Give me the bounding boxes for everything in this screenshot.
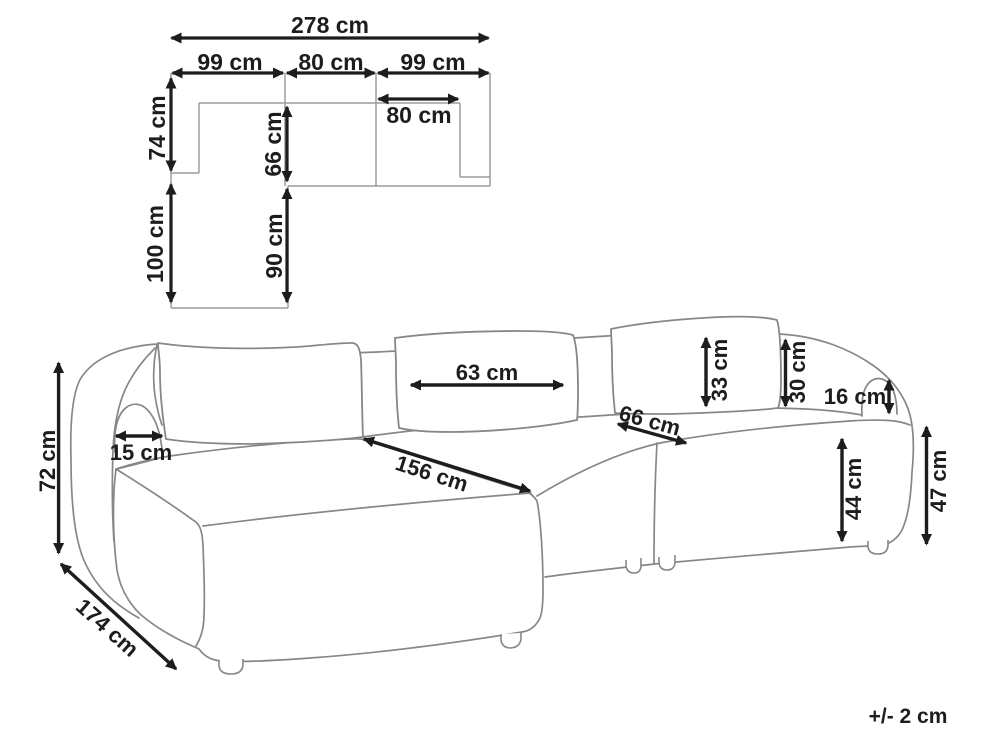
svg-text:47 cm: 47 cm xyxy=(926,450,951,512)
svg-text:72 cm: 72 cm xyxy=(35,430,60,492)
svg-text:278 cm: 278 cm xyxy=(291,12,369,38)
svg-text:63 cm: 63 cm xyxy=(456,360,518,385)
svg-text:99 cm: 99 cm xyxy=(400,49,465,75)
svg-text:30 cm: 30 cm xyxy=(785,341,810,403)
svg-text:33 cm: 33 cm xyxy=(707,339,732,401)
svg-text:90 cm: 90 cm xyxy=(261,213,287,278)
svg-text:80 cm: 80 cm xyxy=(386,102,451,128)
svg-text:+/- 2 cm: +/- 2 cm xyxy=(869,705,948,728)
svg-text:80 cm: 80 cm xyxy=(298,49,363,75)
svg-text:15 cm: 15 cm xyxy=(110,440,172,465)
svg-text:44 cm: 44 cm xyxy=(841,458,866,520)
svg-text:74 cm: 74 cm xyxy=(144,95,170,160)
svg-text:16 cm: 16 cm xyxy=(824,384,886,409)
svg-text:99 cm: 99 cm xyxy=(197,49,262,75)
svg-text:100 cm: 100 cm xyxy=(142,205,168,283)
svg-text:66 cm: 66 cm xyxy=(260,111,286,176)
